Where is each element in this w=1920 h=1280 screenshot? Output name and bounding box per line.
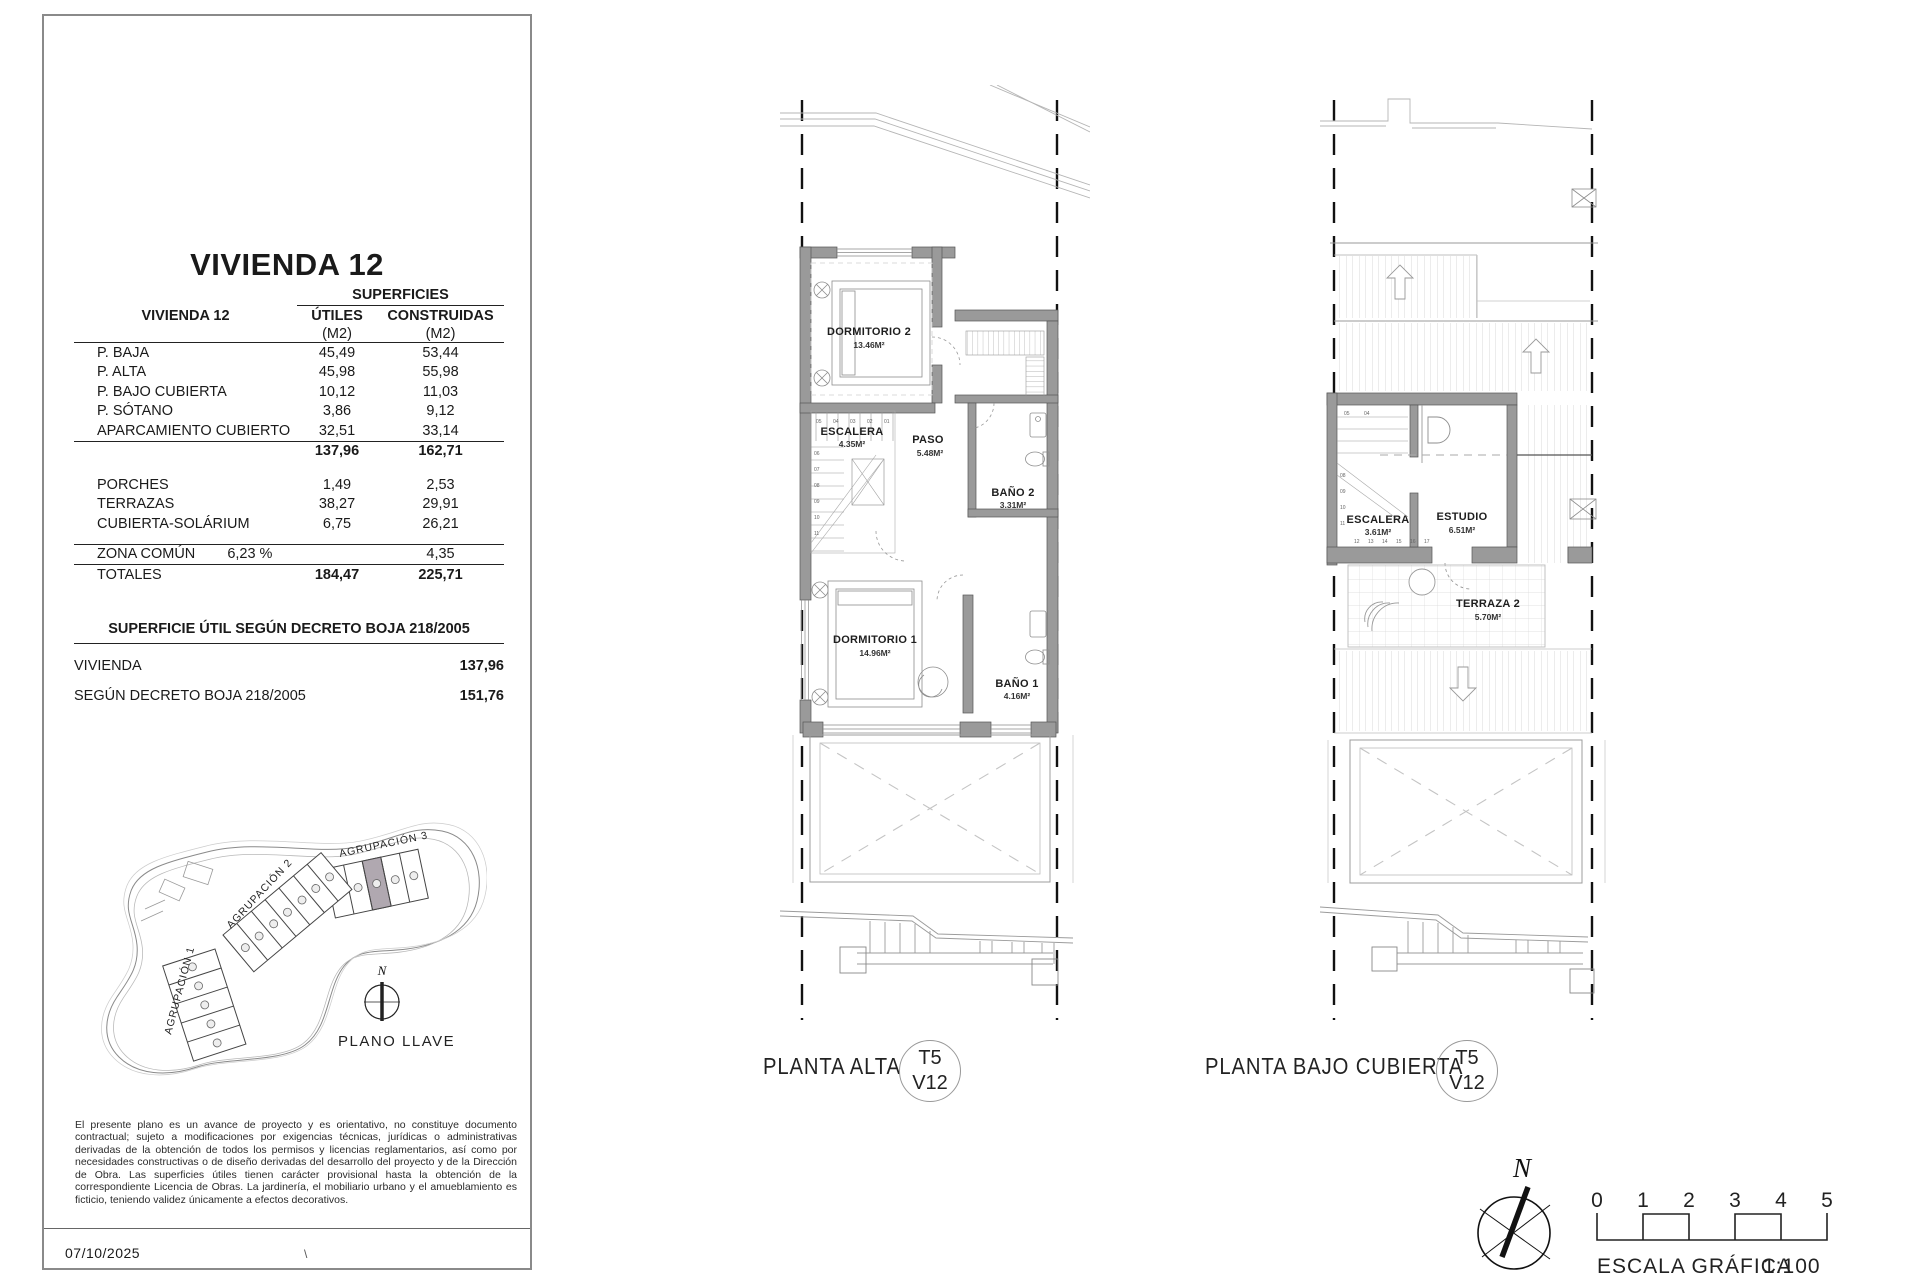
scale-ratio: 1:100 [1763,1255,1821,1278]
room-label-escalera: ESCALERA [1347,514,1410,526]
table-row: APARCAMIENTO CUBIERTO 32,51 33,14 [74,421,504,441]
svg-text:3.31M²: 3.31M² [1000,500,1027,510]
room-label-terraza2: TERRAZA 2 [1456,598,1520,610]
svg-text:13: 13 [1368,539,1374,545]
plan-alta-badge: T5 V12 [899,1040,961,1102]
sheet-date: 07/10/2025 [65,1245,140,1261]
svg-text:14: 14 [1382,539,1388,545]
legend: N 0 1 2 3 4 5 ESCALA GRÁFICA 1:100 [1470,1145,1910,1280]
svg-text:1: 1 [1637,1189,1649,1212]
svg-text:3.61M²: 3.61M² [1365,527,1392,537]
site-outbuildings [141,861,213,921]
floor-plan-planta-alta: 05 04 03 02 01 06 07 08 09 10 11 [780,85,1090,1035]
svg-text:5: 5 [1821,1189,1833,1212]
wardrobe-hatch [966,331,1044,397]
decreto-row: SEGÚN DECRETO BOJA 218/2005 151,76 [74,688,504,704]
room-label-bano2: BAÑO 2 [991,486,1034,499]
svg-text:5.70M²: 5.70M² [1475,612,1502,622]
svg-text:14.96M²: 14.96M² [859,648,890,658]
svg-text:5.48M²: 5.48M² [917,448,944,458]
svg-text:4: 4 [1775,1189,1787,1212]
staircase [1337,417,1408,521]
plan-sheet: VIVIENDA 12 SUPERFICIES VIVIENDA 12 ÚTIL… [0,0,1920,1280]
room-label-dormitorio1: DORMITORIO 1 [833,634,917,646]
north-label: N [1512,1153,1533,1183]
table-unit-row: (M2) (M2) [74,325,504,342]
room-label-bano1: BAÑO 1 [995,677,1038,690]
graphic-scale: 0 1 2 3 4 5 ESCALA GRÁFICA 1:100 [1591,1189,1833,1278]
svg-text:07: 07 [814,467,820,473]
plot-edge-lines [1320,99,1592,129]
badge-unit: V12 [1437,1071,1497,1096]
info-panel: VIVIENDA 12 SUPERFICIES VIVIENDA 12 ÚTIL… [42,14,532,1270]
room-label-estudio: ESTUDIO [1437,511,1488,523]
bathroom2-fixtures [1026,413,1050,466]
totals-row: TOTALES 184,47 225,71 [74,565,504,585]
table-row: P. ALTA 45,98 55,98 [74,363,504,383]
svg-text:16: 16 [1410,539,1416,545]
svg-text:05: 05 [1344,411,1350,417]
room-label-escalera: ESCALERA [821,426,884,438]
zona-comun-row: ZONA COMÚN 6,23 % 4,35 [74,545,504,565]
svg-text:6.51M²: 6.51M² [1449,525,1476,535]
svg-text:3: 3 [1729,1189,1741,1212]
plan-alta-title: PLANTA ALTA [763,1053,901,1080]
svg-text:2: 2 [1683,1189,1695,1212]
superficies-header: SUPERFICIES [297,287,504,306]
lower-roof-void [793,735,1073,883]
svg-text:4.16M²: 4.16M² [1004,691,1031,701]
table-row: PORCHES 1,49 2,53 [74,475,504,495]
svg-text:03: 03 [850,419,856,425]
zona-comun-percent: 6,23 % [199,546,272,562]
road-edge-lines [780,85,1090,198]
svg-text:04: 04 [1364,411,1370,417]
table-row: P. BAJA 45,49 53,44 [74,343,504,363]
zona-comun-label: ZONA COMÚN [97,546,195,562]
room-label-paso: PASO [912,434,944,446]
garden-fence [780,911,1073,985]
row-header: VIVIENDA 12 [74,308,297,324]
svg-text:08: 08 [1340,473,1346,479]
surface-table: SUPERFICIES VIVIENDA 12 ÚTILES CONSTRUID… [74,284,504,585]
svg-text:11: 11 [814,531,819,537]
svg-text:17: 17 [1424,539,1430,545]
table-column-header-row: VIVIENDA 12 ÚTILES CONSTRUIDAS [74,306,504,325]
svg-text:0: 0 [1591,1189,1603,1212]
decreto-header: SUPERFICIE ÚTIL SEGÚN DECRETO BOJA 218/2… [74,621,504,644]
svg-text:04: 04 [833,419,839,425]
site-key-plan: AGRUPACIÓN 3 AGRUPACIÓN 2 AGRUPACIÓN 1 N… [57,817,487,1087]
decreto-block: SUPERFICIE ÚTIL SEGÚN DECRETO BOJA 218/2… [74,621,504,704]
col-utiles: ÚTILES [297,308,377,324]
table-row: CUBIERTA-SOLÁRIUM 6,75 26,21 [74,514,504,534]
table-row: P. BAJO CUBIERTA 10,12 11,03 [74,382,504,402]
svg-text:09: 09 [1340,489,1346,495]
north-compass: N [1478,1153,1550,1269]
footer-tick-mark: \ [304,1247,307,1261]
plano-llave-caption: PLANO LLAVE [338,1033,455,1050]
svg-text:11: 11 [1340,521,1345,527]
bathroom1-fixtures [1026,611,1050,664]
svg-text:10: 10 [1340,505,1346,511]
garden-fence [1320,907,1594,993]
svg-text:4.35M²: 4.35M² [839,439,866,449]
decreto-row: VIVIENDA 137,96 [74,658,504,674]
svg-text:05: 05 [816,419,822,425]
badge-unit: V12 [900,1071,960,1096]
svg-text:10: 10 [814,515,820,521]
badge-type: T5 [1437,1046,1497,1071]
svg-text:12: 12 [1354,539,1360,545]
north-compass-small: N [364,963,400,1021]
plan-bajo-cubierta-badge: T5 V12 [1436,1040,1498,1102]
badge-type: T5 [900,1046,960,1071]
room-label-dormitorio2: DORMITORIO 2 [827,326,911,338]
table-row: TERRAZAS 38,27 29,91 [74,495,504,515]
svg-text:15: 15 [1396,539,1402,545]
svg-text:08: 08 [814,483,820,489]
lower-roof-void [1328,740,1605,883]
scale-bar [1597,1213,1827,1240]
table-group-header-row: SUPERFICIES [74,284,504,306]
svg-text:01: 01 [884,419,890,425]
col-construidas: CONSTRUIDAS [377,308,504,324]
svg-text:02: 02 [867,419,873,425]
table-row: P. SÓTANO 3,86 9,12 [74,402,504,422]
floor-plan-planta-bajo-cubierta: 05 04 08 09 10 11 12 13 14 15 16 17 [1320,85,1630,1035]
title-block-footer: 07/10/2025 \ [44,1228,530,1268]
svg-text:06: 06 [814,451,820,457]
plan-bajo-cubierta-title: PLANTA BAJO CUBIERTA [1205,1053,1463,1080]
page-title: VIVIENDA 12 [44,247,530,283]
north-label: N [377,963,388,978]
subtotal-row: 137,96 162,71 [74,442,504,462]
legal-disclaimer: El presente plano es un avance de proyec… [75,1119,517,1207]
svg-text:13.46M²: 13.46M² [853,340,884,350]
svg-text:09: 09 [814,499,820,505]
